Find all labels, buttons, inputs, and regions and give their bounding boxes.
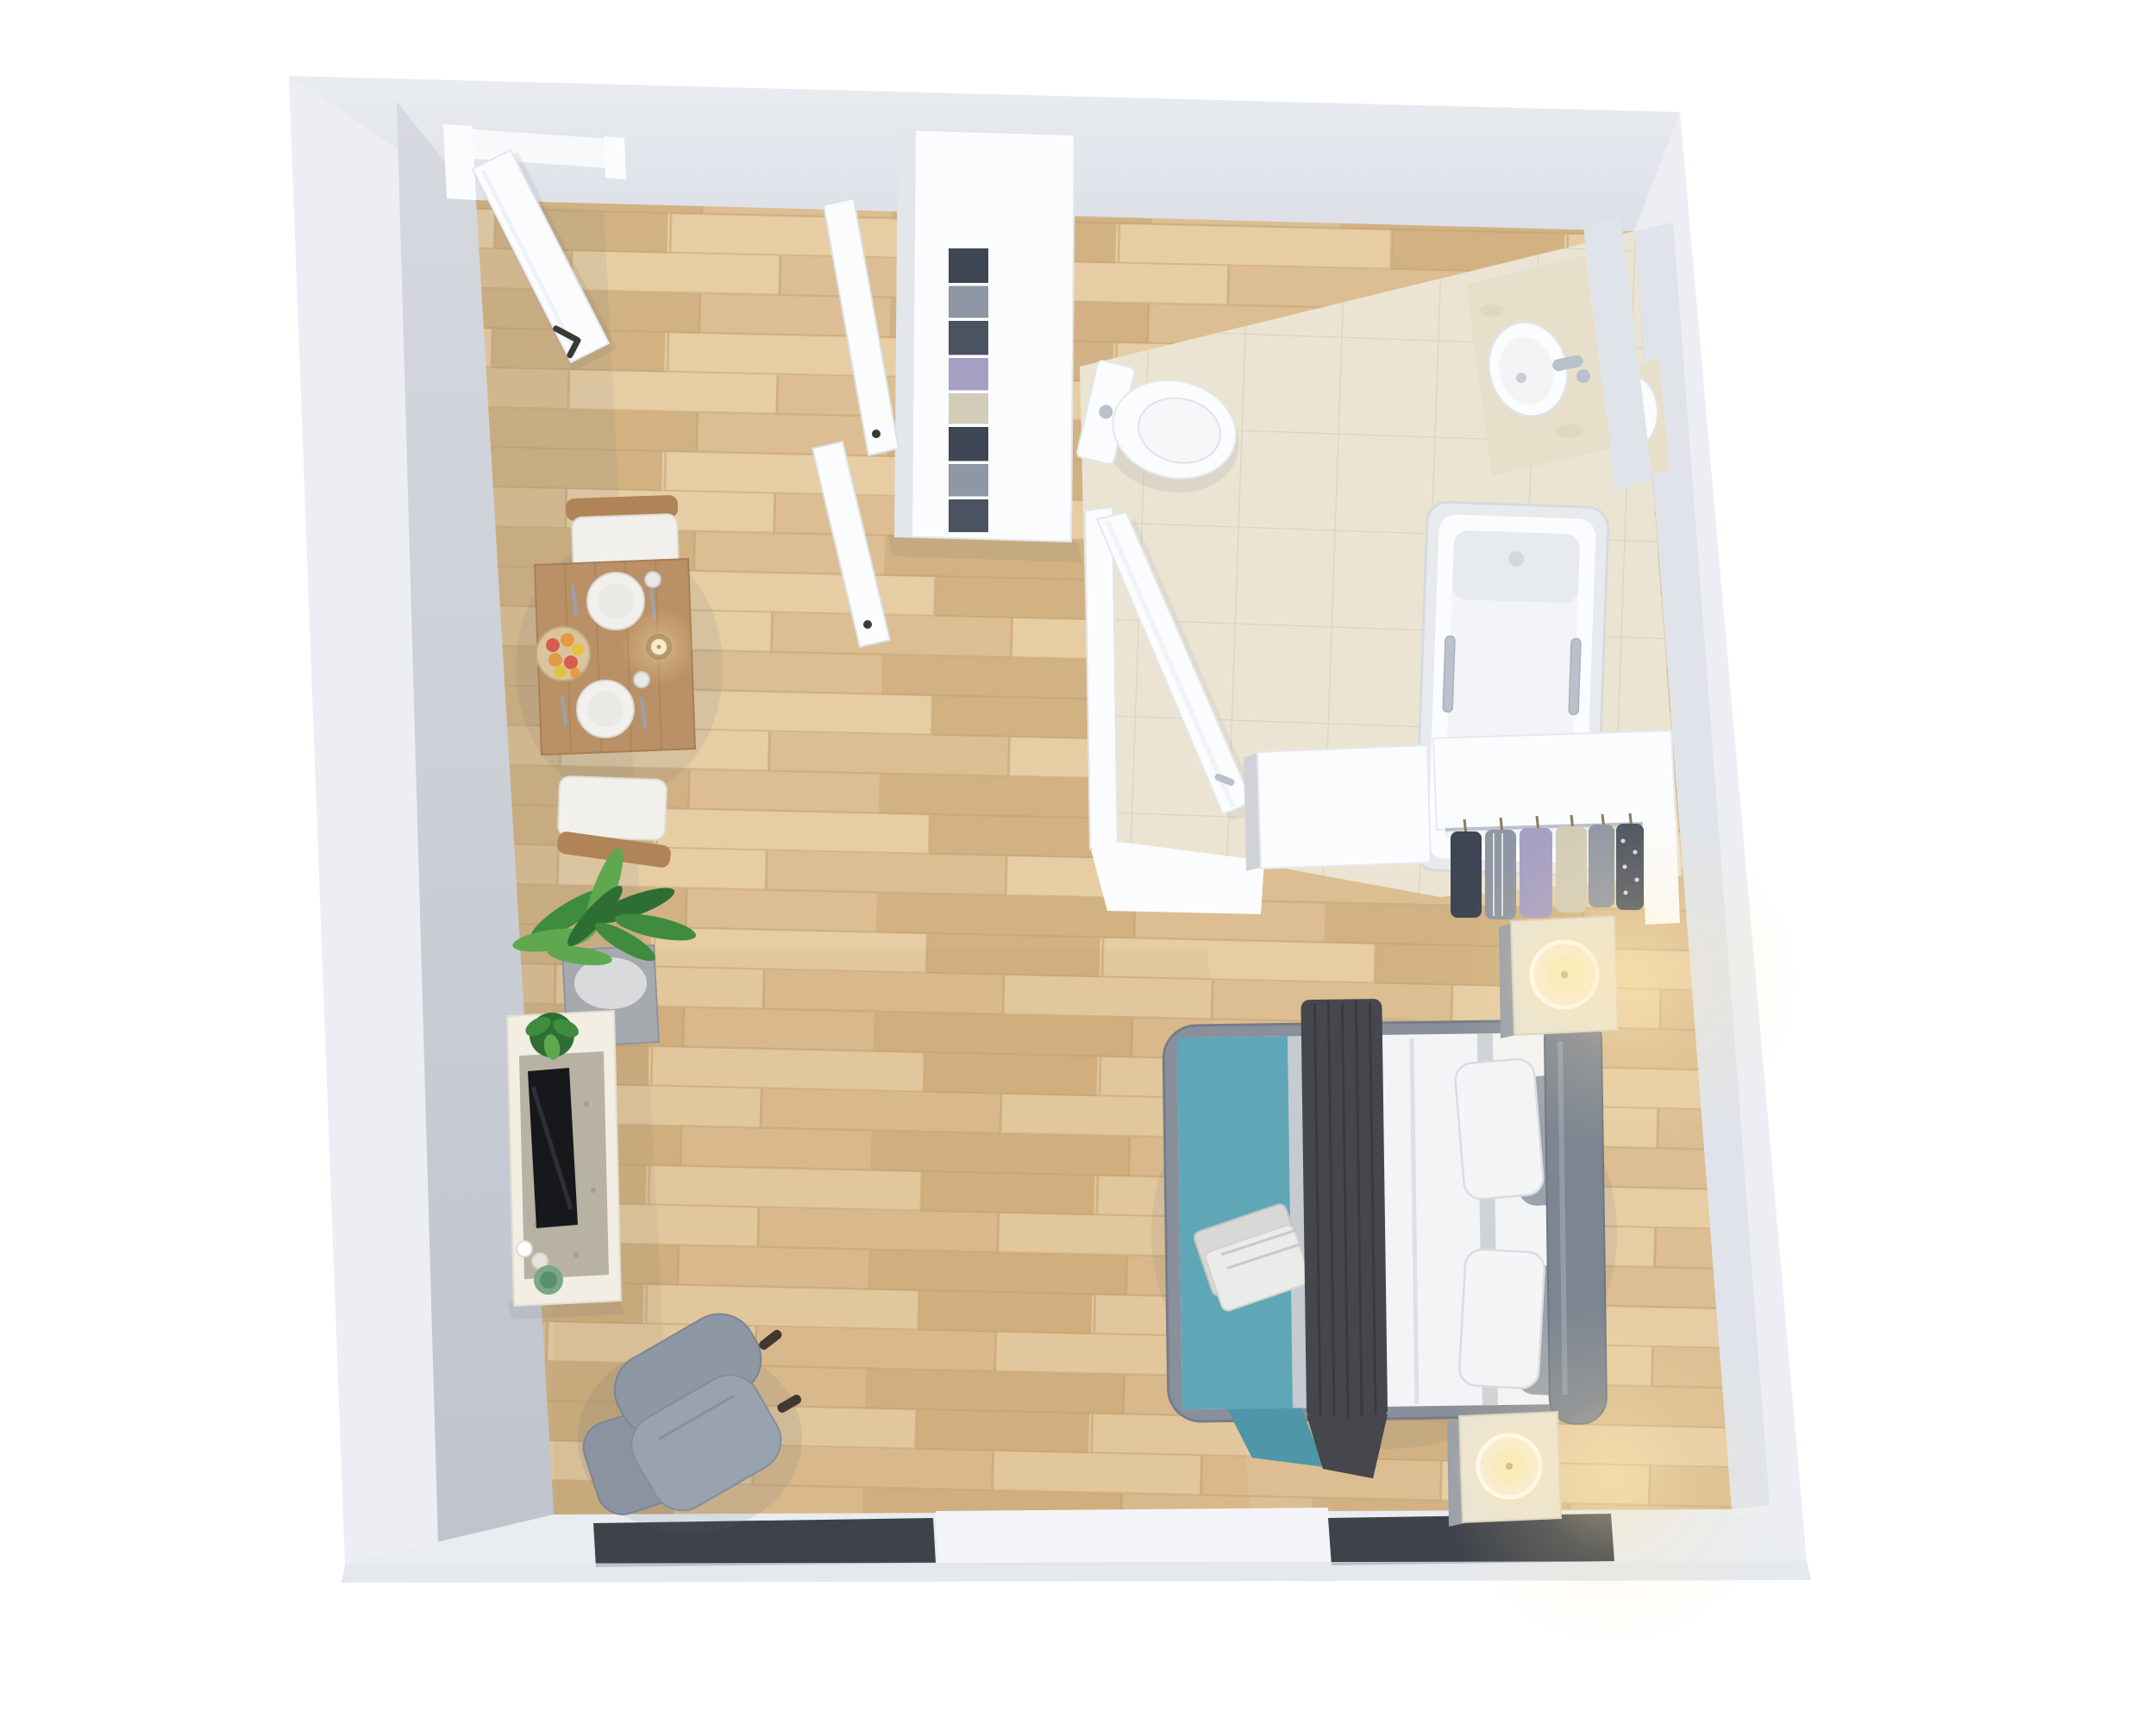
floorplan-page: Top-down 3D floor plan render of a studi…: [0, 0, 2156, 1725]
bathtub-basin-shade: [1452, 530, 1581, 604]
wardrobe-door-handle-1: [872, 430, 881, 438]
candle-glow-core-bottom: [1452, 1409, 1566, 1523]
wardrobe-inner-shadow: [895, 129, 916, 536]
entry-jamb-right: [604, 136, 626, 179]
marble-vein: [1480, 304, 1504, 317]
plate-top-inner: [598, 583, 634, 619]
faucet-left-base: [1576, 369, 1590, 383]
bathroom-door-frame: [1085, 507, 1118, 852]
wardrobe-door-handle-2: [863, 620, 872, 629]
glass-top: [645, 572, 661, 587]
counter-a: [1257, 745, 1431, 869]
plate-bottom-inner: [587, 691, 624, 727]
green-bowl-inner: [540, 1271, 557, 1289]
entry-jamb-left: [443, 124, 476, 200]
candle-glow-dining: [620, 608, 698, 686]
chair-bottom-cushion: [558, 776, 667, 840]
marble-vein: [1556, 424, 1583, 438]
candle-glow-core-top: [1504, 914, 1625, 1035]
bathtub-handle-right: [1569, 638, 1581, 714]
floorplan-render: Top-down 3D floor plan render of a studi…: [0, 0, 2156, 1725]
tv-console: [507, 1011, 624, 1320]
bathtub-handle-left: [1443, 636, 1455, 712]
wardrobe-folded-clothes: [949, 248, 988, 532]
planter-pebbles: [574, 957, 647, 1009]
sink-drain: [1516, 373, 1526, 383]
console-cup-1: [517, 1241, 532, 1257]
bottom-wall-white-segment: [936, 1508, 1330, 1565]
